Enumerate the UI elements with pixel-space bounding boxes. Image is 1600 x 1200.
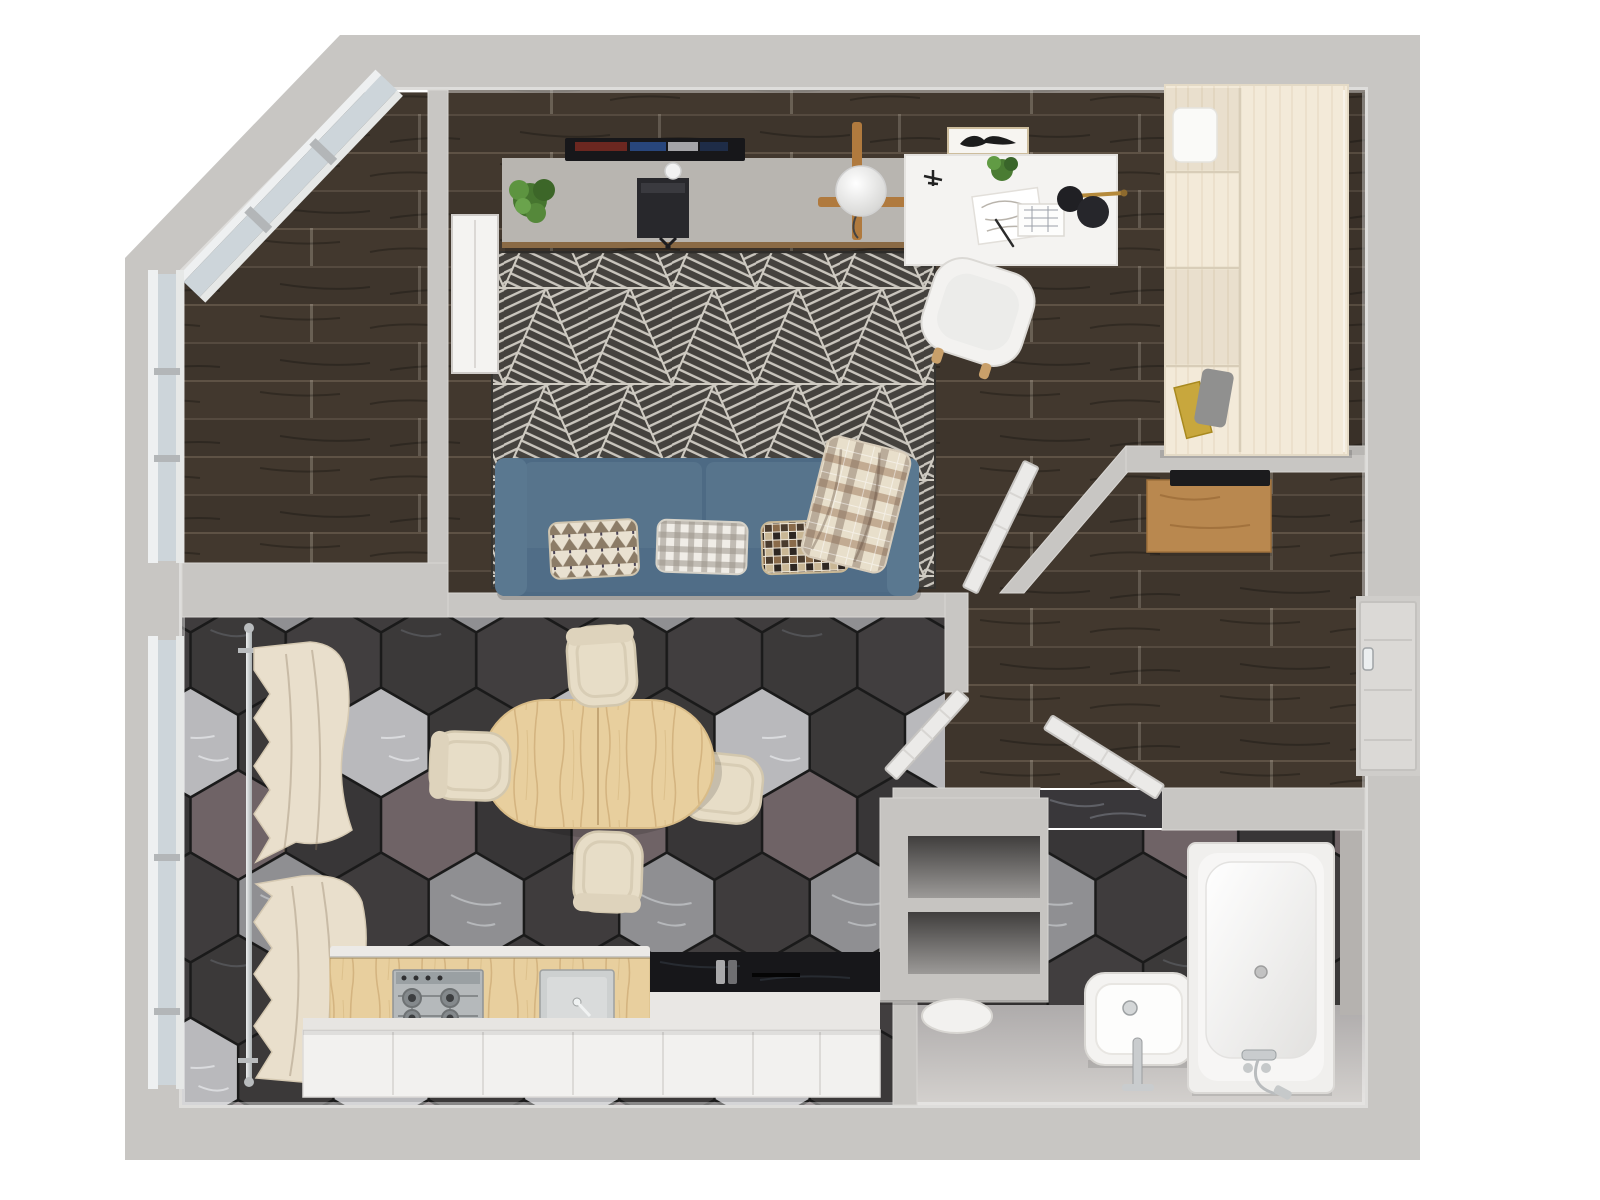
bathtub (1188, 843, 1334, 1101)
salt-shaker (716, 960, 725, 984)
kitchen-window (148, 636, 184, 1089)
wall-kitchen-hallway (945, 593, 968, 692)
dining-chair-west (429, 731, 511, 802)
radiator-panel (452, 215, 498, 373)
dining-chair-south (573, 831, 644, 913)
window-curtain-top (254, 642, 352, 862)
wall-art-frame (948, 128, 1028, 154)
base-cabinets (303, 1030, 880, 1097)
wall-niche-shelves (880, 798, 1048, 1005)
wall-bathroom-top-right (1162, 788, 1365, 830)
entry-door-handle (1363, 648, 1373, 670)
tub-drain (1255, 966, 1267, 978)
webcam-sphere (665, 163, 681, 179)
three-seat-sofa (495, 434, 921, 600)
bathroom-right-floor-strip (1340, 830, 1365, 1015)
wall-balcony-living (428, 90, 448, 617)
floor-plan-canvas (0, 0, 1600, 1200)
window-mullion (154, 455, 180, 462)
floor-plan-sheet (1018, 204, 1064, 236)
console-black-tray (1170, 470, 1270, 486)
toilet (922, 999, 992, 1033)
window-mullion (154, 854, 180, 861)
entry-door (1356, 596, 1420, 776)
niche-upper (908, 836, 1040, 898)
av-receiver (637, 178, 689, 248)
bathroom-door-threshold (1040, 790, 1162, 828)
balcony-left-window (148, 270, 184, 563)
wardrobe-unit (1160, 85, 1365, 458)
kitchen-counter (303, 946, 880, 1097)
niche-lower (908, 912, 1040, 974)
wall-tv (565, 138, 745, 161)
pillow-triangle-print (549, 519, 640, 580)
black-counter (650, 952, 880, 992)
basin-faucet (1123, 1001, 1137, 1015)
window-mullion (154, 368, 180, 375)
window-mullion (154, 1008, 180, 1015)
sofa-armrest-left (495, 458, 527, 596)
pepper-shaker (728, 960, 737, 984)
floor-plan-stage (0, 0, 1600, 1200)
console-table (1147, 470, 1272, 556)
pillow-gingham (656, 519, 748, 574)
dining-chair-north (565, 624, 638, 709)
folded-towels (1173, 108, 1217, 162)
wall-balcony-kitchen (182, 563, 448, 617)
